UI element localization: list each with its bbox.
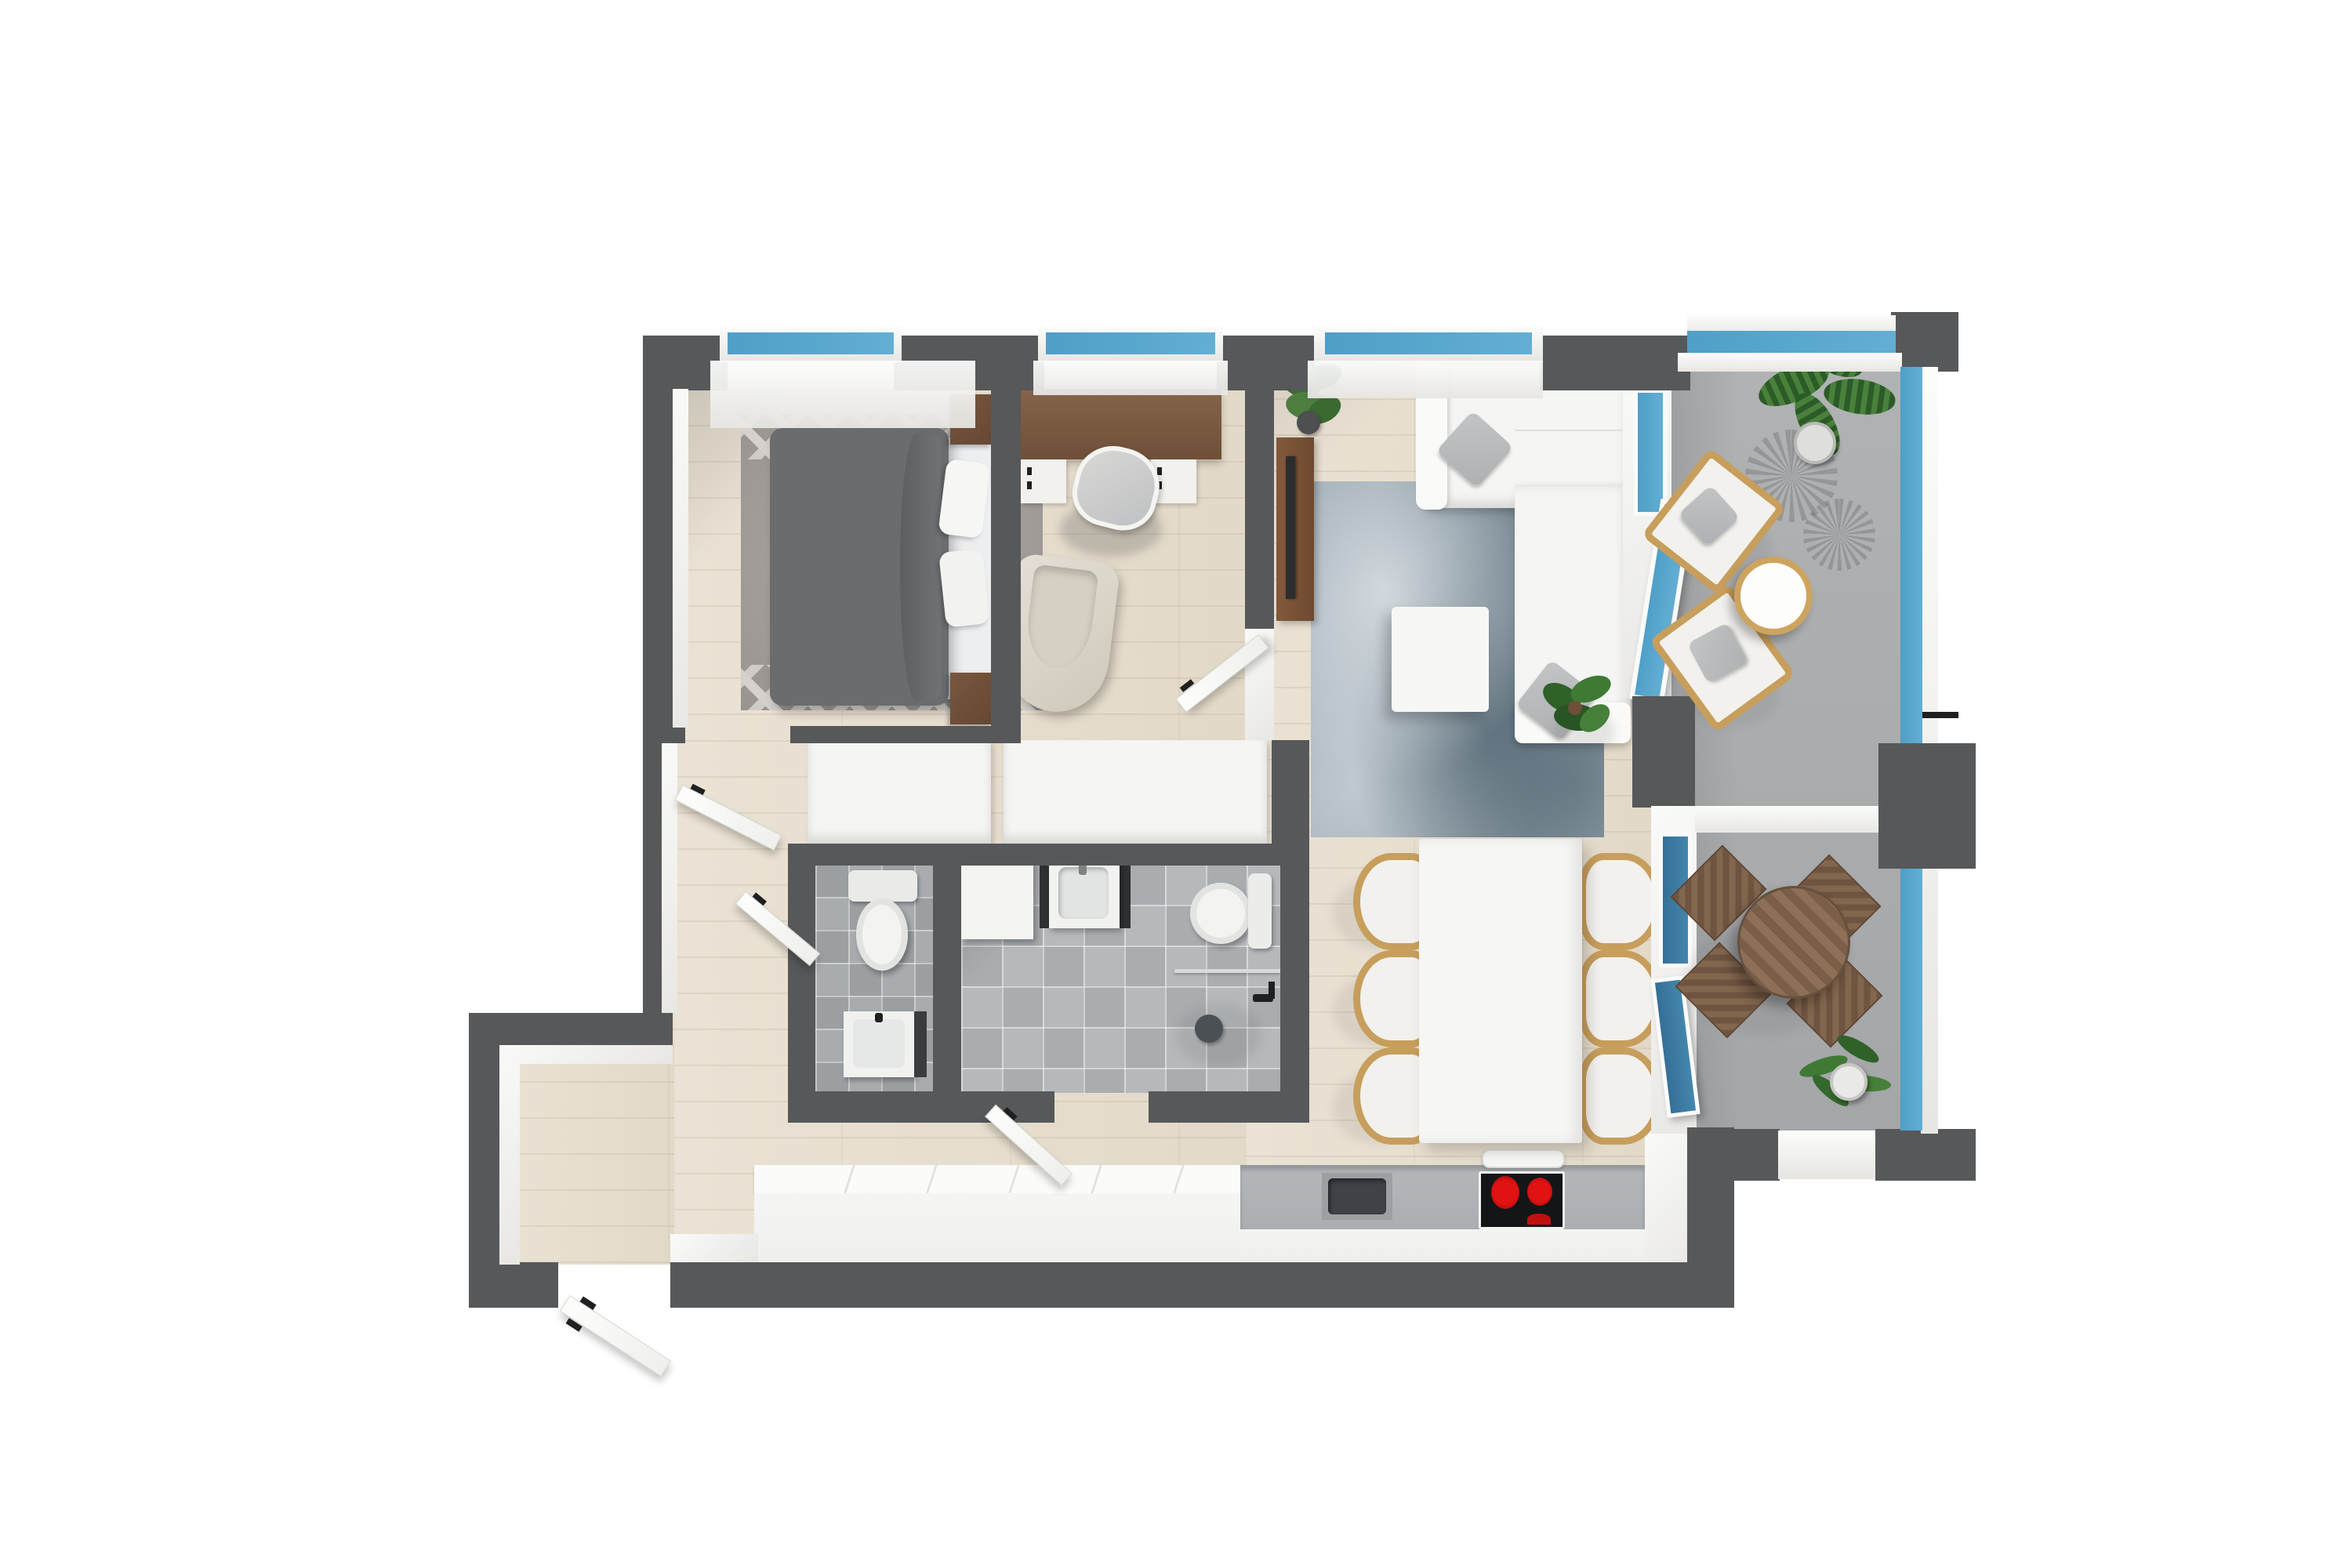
wc-basin-inner (853, 1019, 905, 1068)
entry-alcove-floor (499, 1045, 674, 1265)
wc-basin-faucet (875, 1013, 883, 1022)
balcony-top-sill (1678, 353, 1902, 372)
wall-below-wardrobes (788, 844, 1309, 866)
entry-bottom-wall-face (670, 1234, 758, 1264)
fan-palm-pot (1794, 422, 1836, 464)
mid-balcony-wall-block (1632, 696, 1695, 808)
kitchen-sink-basin (1328, 1178, 1386, 1214)
bed-pillow-top (938, 459, 990, 539)
living-plant-floor (1538, 673, 1620, 759)
bedroom-bottom-wall-a (673, 726, 685, 743)
bathroom-toilet-bowl (1190, 883, 1251, 944)
office-window (1046, 332, 1215, 354)
living-window (1325, 332, 1532, 354)
bottom-wall-left (469, 1262, 558, 1308)
living-window-sill (1308, 361, 1543, 398)
sofa-seam (1515, 430, 1631, 431)
balcony-sill-band (1695, 806, 1902, 833)
balustrade-bracket (1922, 712, 1958, 718)
shower-drain (1195, 1014, 1223, 1043)
shower-screen (1174, 969, 1280, 973)
cooktop-burner-left (1491, 1176, 1519, 1209)
nightstand-bottom (950, 673, 993, 724)
top-wall-seg-3 (1217, 336, 1316, 390)
balcony-bottom-wall-left (1687, 1129, 1780, 1181)
vanity-side-dark-left (1040, 861, 1049, 928)
coffee-table (1392, 607, 1489, 712)
wc-cabinet-dark (914, 1011, 927, 1077)
balcony-top-glass (1687, 331, 1896, 354)
bedroom-window (728, 332, 894, 354)
dining-chair-right-1 (1579, 853, 1662, 950)
bath-right-wall (1280, 815, 1309, 1123)
wc-bath-divider (933, 864, 961, 1123)
outdoor-table (1737, 886, 1850, 999)
office-window-sill (1033, 361, 1228, 395)
vanity-side-dark-right (1120, 861, 1131, 928)
dining-chair-right-3 (1579, 1047, 1662, 1145)
office-right-wall (1245, 359, 1274, 629)
hall-left-wall-face (662, 743, 677, 1013)
tv-screen (1286, 456, 1295, 599)
bathroom-toilet-tank (1248, 873, 1272, 949)
step-wall (469, 1013, 673, 1046)
dining-table (1419, 839, 1582, 1143)
balcony-potted-palm (1795, 1035, 1897, 1129)
bedroom-window-sill (710, 361, 975, 428)
bed-pillow-bottom (938, 548, 990, 627)
wardrobe-left (808, 740, 991, 844)
shower-arm (1269, 982, 1275, 999)
wc-toilet-bowl (856, 898, 908, 971)
balcony-bottom-white-seg (1778, 1131, 1877, 1179)
top-wall-seg-4 (1540, 336, 1690, 390)
kitchen-counter-white-top (754, 1165, 1240, 1193)
bottom-wall-main (670, 1262, 1687, 1308)
bedroom-left-face (673, 389, 688, 728)
alcove-top-face (499, 1045, 673, 1064)
living-balcony-window (1634, 389, 1667, 516)
balustrade-glass-lower (1900, 867, 1922, 1131)
washing-machine (961, 861, 1033, 939)
cooktop-burner-partial (1527, 1214, 1551, 1225)
floor-plan-canvas (0, 0, 2352, 1568)
bedroom-bottom-wall-b (790, 726, 993, 743)
cooktop (1479, 1171, 1565, 1229)
kitchen-counter-gray (1240, 1165, 1645, 1229)
cooktop-burner-right (1527, 1178, 1552, 1206)
wc-toilet-tank (848, 870, 917, 902)
dining-chair-right-2 (1579, 950, 1662, 1047)
palm-shadow-2 (1803, 499, 1875, 571)
balcony-bottom-wall-right (1875, 1129, 1976, 1181)
bath-bottom-wall-b (1149, 1091, 1309, 1123)
range-hood-handle (1482, 1149, 1565, 1168)
alcove-left-face (499, 1045, 520, 1265)
balustrade-glass-upper (1900, 367, 1922, 745)
mid-right-pillar (1878, 743, 1976, 869)
left-wall-lower (469, 1013, 499, 1264)
bedroom-office-divider (991, 389, 1021, 743)
balcony-side-table (1734, 557, 1813, 635)
wc-left-wall (788, 844, 815, 1123)
wardrobe-right (1004, 740, 1267, 844)
plant-pot (1297, 411, 1320, 434)
tv-console (1276, 437, 1314, 621)
bed-duvet-fold (900, 433, 941, 701)
entry-door (560, 1295, 671, 1377)
